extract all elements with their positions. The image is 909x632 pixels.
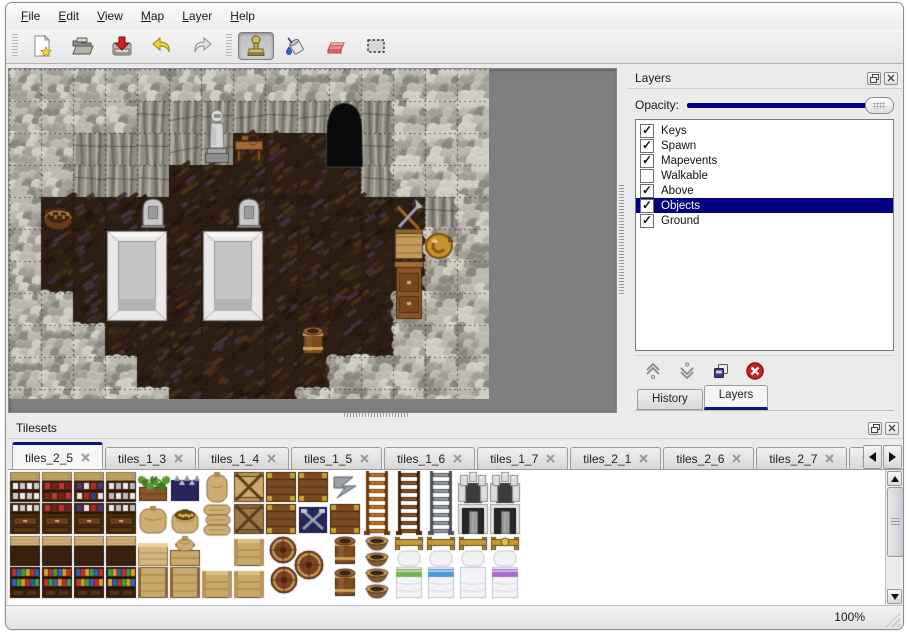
layer-toolbar	[635, 355, 894, 386]
fill-tool-button[interactable]	[278, 32, 314, 60]
horizontal-splitter[interactable]	[6, 411, 903, 418]
menu-layer[interactable]: Layer	[173, 6, 221, 26]
up-triangle-icon	[891, 476, 899, 482]
close-tab-icon[interactable]	[453, 454, 462, 463]
resize-grip[interactable]	[885, 612, 900, 627]
zoom-level: 100%	[834, 610, 865, 624]
layers-history-tabs: HistoryLayers	[635, 386, 894, 411]
vertical-splitter[interactable]	[615, 68, 627, 411]
close-tab-icon[interactable]	[360, 454, 369, 463]
splitter-grip	[619, 185, 624, 295]
layer-name: Above	[661, 185, 694, 197]
close-icon	[888, 424, 896, 432]
new-map-button[interactable]	[24, 32, 60, 60]
app-window: FileEditViewMapLayerHelp	[5, 2, 904, 630]
splitter-grip	[344, 413, 410, 417]
scroll-up-button[interactable]	[887, 471, 902, 486]
close-tab-icon[interactable]	[639, 454, 648, 463]
left-triangle-icon	[869, 452, 876, 462]
menu-map[interactable]: Map	[132, 6, 173, 26]
layer-visibility-checkbox[interactable]: ✓	[640, 124, 654, 138]
tileset-tab-label: tiles_1_5	[304, 452, 352, 466]
open-folder-icon	[70, 34, 94, 58]
tileset-tab-tiles_1_5[interactable]: tiles_1_5	[291, 447, 382, 469]
layer-name: Mapevents	[661, 155, 717, 167]
tileset-tab-tiles_1_4[interactable]: tiles_1_4	[198, 447, 289, 469]
delete-layer-icon	[745, 361, 765, 381]
tileset-scrollbar[interactable]	[885, 470, 903, 605]
opacity-slider[interactable]	[687, 96, 894, 114]
tileset-tab-tiles_2_7[interactable]: tiles_2_7	[756, 447, 847, 469]
undo-icon	[150, 34, 174, 58]
layer-visibility-checkbox[interactable]: ✓	[640, 199, 654, 213]
move-layer-up-icon	[643, 361, 663, 381]
move-layer-down-button[interactable]	[675, 359, 699, 383]
layer-name: Walkable	[661, 170, 708, 182]
duplicate-layer-icon	[711, 361, 731, 381]
tileset-tab-label: tiles_1_7	[490, 452, 538, 466]
tileset-tab-tiles_1_3[interactable]: tiles_1_3	[105, 447, 196, 469]
layer-visibility-checkbox[interactable]: ✓	[640, 139, 654, 153]
layer-name: Objects	[661, 200, 700, 212]
save-map-button[interactable]	[104, 32, 140, 60]
status-bar: 100%	[6, 605, 903, 630]
undo-button[interactable]	[144, 32, 180, 60]
layers-panel: Layers Opacity:	[627, 68, 902, 411]
open-map-button[interactable]	[64, 32, 100, 60]
opacity-slider-handle[interactable]	[865, 97, 894, 114]
float-panel-button[interactable]	[867, 72, 881, 85]
tileset-tab-label: tiles_2_1	[583, 452, 631, 466]
tilesets-panel-titlebar: Tilesets	[8, 418, 903, 439]
tileset-tab-label: tiles_2_7	[769, 452, 817, 466]
tileset-view	[8, 470, 903, 605]
menu-file[interactable]: File	[12, 6, 49, 26]
close-panel-button[interactable]	[885, 422, 899, 435]
redo-icon	[190, 34, 214, 58]
eraser-tool-icon	[324, 34, 348, 58]
down-triangle-icon	[891, 594, 899, 600]
float-icon	[871, 424, 880, 433]
move-layer-up-button[interactable]	[641, 359, 665, 383]
save-icon	[110, 34, 134, 58]
toolbar-grip[interactable]	[226, 34, 232, 58]
menu-edit[interactable]: Edit	[49, 6, 88, 26]
layer-row-ground[interactable]: ✓Ground	[636, 213, 893, 228]
toolbar-grip[interactable]	[12, 34, 18, 58]
layer-name: Keys	[661, 125, 687, 137]
layer-row-walkable[interactable]: Walkable	[636, 168, 893, 183]
menu-view[interactable]: View	[88, 6, 132, 26]
layer-name: Spawn	[661, 140, 696, 152]
layers-panel-body: Opacity: ✓Keys✓Spawn✓MapeventsWalkable✓A…	[627, 89, 902, 411]
tileset-tab-tiles_1_6[interactable]: tiles_1_6	[384, 447, 475, 469]
menu-bar: FileEditViewMapLayerHelp	[6, 3, 904, 29]
close-icon	[887, 74, 895, 82]
layer-visibility-checkbox[interactable]	[640, 169, 654, 183]
new-file-icon	[30, 34, 54, 58]
close-tab-icon[interactable]	[546, 454, 555, 463]
tab-history[interactable]: History	[637, 389, 703, 410]
map-view[interactable]	[8, 68, 617, 413]
tileset-tab-tiles_2_5[interactable]: tiles_2_5	[12, 442, 103, 469]
stamp-tool-icon	[244, 34, 268, 58]
layer-visibility-checkbox[interactable]: ✓	[640, 214, 654, 228]
layer-visibility-checkbox[interactable]: ✓	[640, 154, 654, 168]
close-tab-icon[interactable]	[267, 454, 276, 463]
opacity-label: Opacity:	[635, 98, 679, 112]
tileset-tab-tiles_2_6[interactable]: tiles_2_6	[663, 447, 754, 469]
tileset-tab-label: tiles_2_5	[25, 451, 73, 465]
redo-button[interactable]	[184, 32, 220, 60]
close-panel-button[interactable]	[884, 72, 898, 85]
layer-row-spawn[interactable]: ✓Spawn	[636, 138, 893, 153]
scroll-down-button[interactable]	[887, 589, 902, 604]
layer-row-mapevents[interactable]: ✓Mapevents	[636, 153, 893, 168]
layer-list: ✓Keys✓Spawn✓MapeventsWalkable✓Above✓Obje…	[635, 119, 894, 351]
tilesets-panel: Tilesets tiles_2_5tiles_1_3tiles_1_4tile…	[8, 418, 903, 605]
select-tool-button[interactable]	[358, 32, 394, 60]
layer-row-above[interactable]: ✓Above	[636, 183, 893, 198]
rect-select-icon	[364, 34, 388, 58]
menu-help[interactable]: Help	[221, 6, 264, 26]
right-triangle-icon	[889, 452, 896, 462]
tileset-tab-label: tiles_2_6	[676, 452, 724, 466]
close-tab-icon[interactable]	[732, 454, 741, 463]
close-tab-icon[interactable]	[81, 453, 90, 462]
tileset-tab-tiles_1_7[interactable]: tiles_1_7	[477, 447, 568, 469]
eraser-tool-button[interactable]	[318, 32, 354, 60]
tileset-tab-label: tiles_1_4	[211, 452, 259, 466]
toolbar	[6, 29, 904, 64]
tilesets-panel-title: Tilesets	[16, 421, 57, 435]
tileset-canvas[interactable]	[9, 471, 873, 599]
layer-row-keys[interactable]: ✓Keys	[636, 123, 893, 138]
layer-row-objects[interactable]: ✓Objects	[636, 198, 893, 213]
tileset-tabbar: tiles_2_5tiles_1_3tiles_1_4tiles_1_5tile…	[8, 439, 903, 470]
duplicate-layer-button[interactable]	[709, 359, 733, 383]
tabs-scroll-left-button[interactable]	[863, 445, 882, 469]
layers-panel-title: Layers	[635, 71, 671, 85]
fill-tool-icon	[284, 34, 308, 58]
layer-visibility-checkbox[interactable]: ✓	[640, 184, 654, 198]
layers-panel-titlebar: Layers	[627, 68, 902, 89]
float-icon	[870, 74, 879, 83]
map-canvas[interactable]	[9, 69, 489, 399]
close-tab-icon[interactable]	[825, 454, 834, 463]
opacity-slider-track[interactable]	[687, 103, 892, 108]
delete-layer-button[interactable]	[743, 359, 767, 383]
stamp-tool-button[interactable]	[238, 32, 274, 60]
tabs-scroll-right-button[interactable]	[883, 445, 902, 469]
tileset-tabs: tiles_2_5tiles_1_3tiles_1_4tiles_1_5tile…	[12, 442, 863, 469]
tileset-tab-tiles_2_1[interactable]: tiles_2_1	[570, 447, 661, 469]
close-tab-icon[interactable]	[174, 454, 183, 463]
layer-name: Ground	[661, 215, 699, 227]
float-panel-button[interactable]	[868, 422, 882, 435]
tileset-tab-label: tiles_1_3	[118, 452, 166, 466]
scrollbar-thumb[interactable]	[887, 487, 903, 557]
tab-layers[interactable]: Layers	[704, 385, 769, 410]
move-layer-down-icon	[677, 361, 697, 381]
tileset-tab-label: tiles_1_6	[397, 452, 445, 466]
tileset-tab-tiles_2[interactable]: tiles_2	[849, 447, 863, 469]
